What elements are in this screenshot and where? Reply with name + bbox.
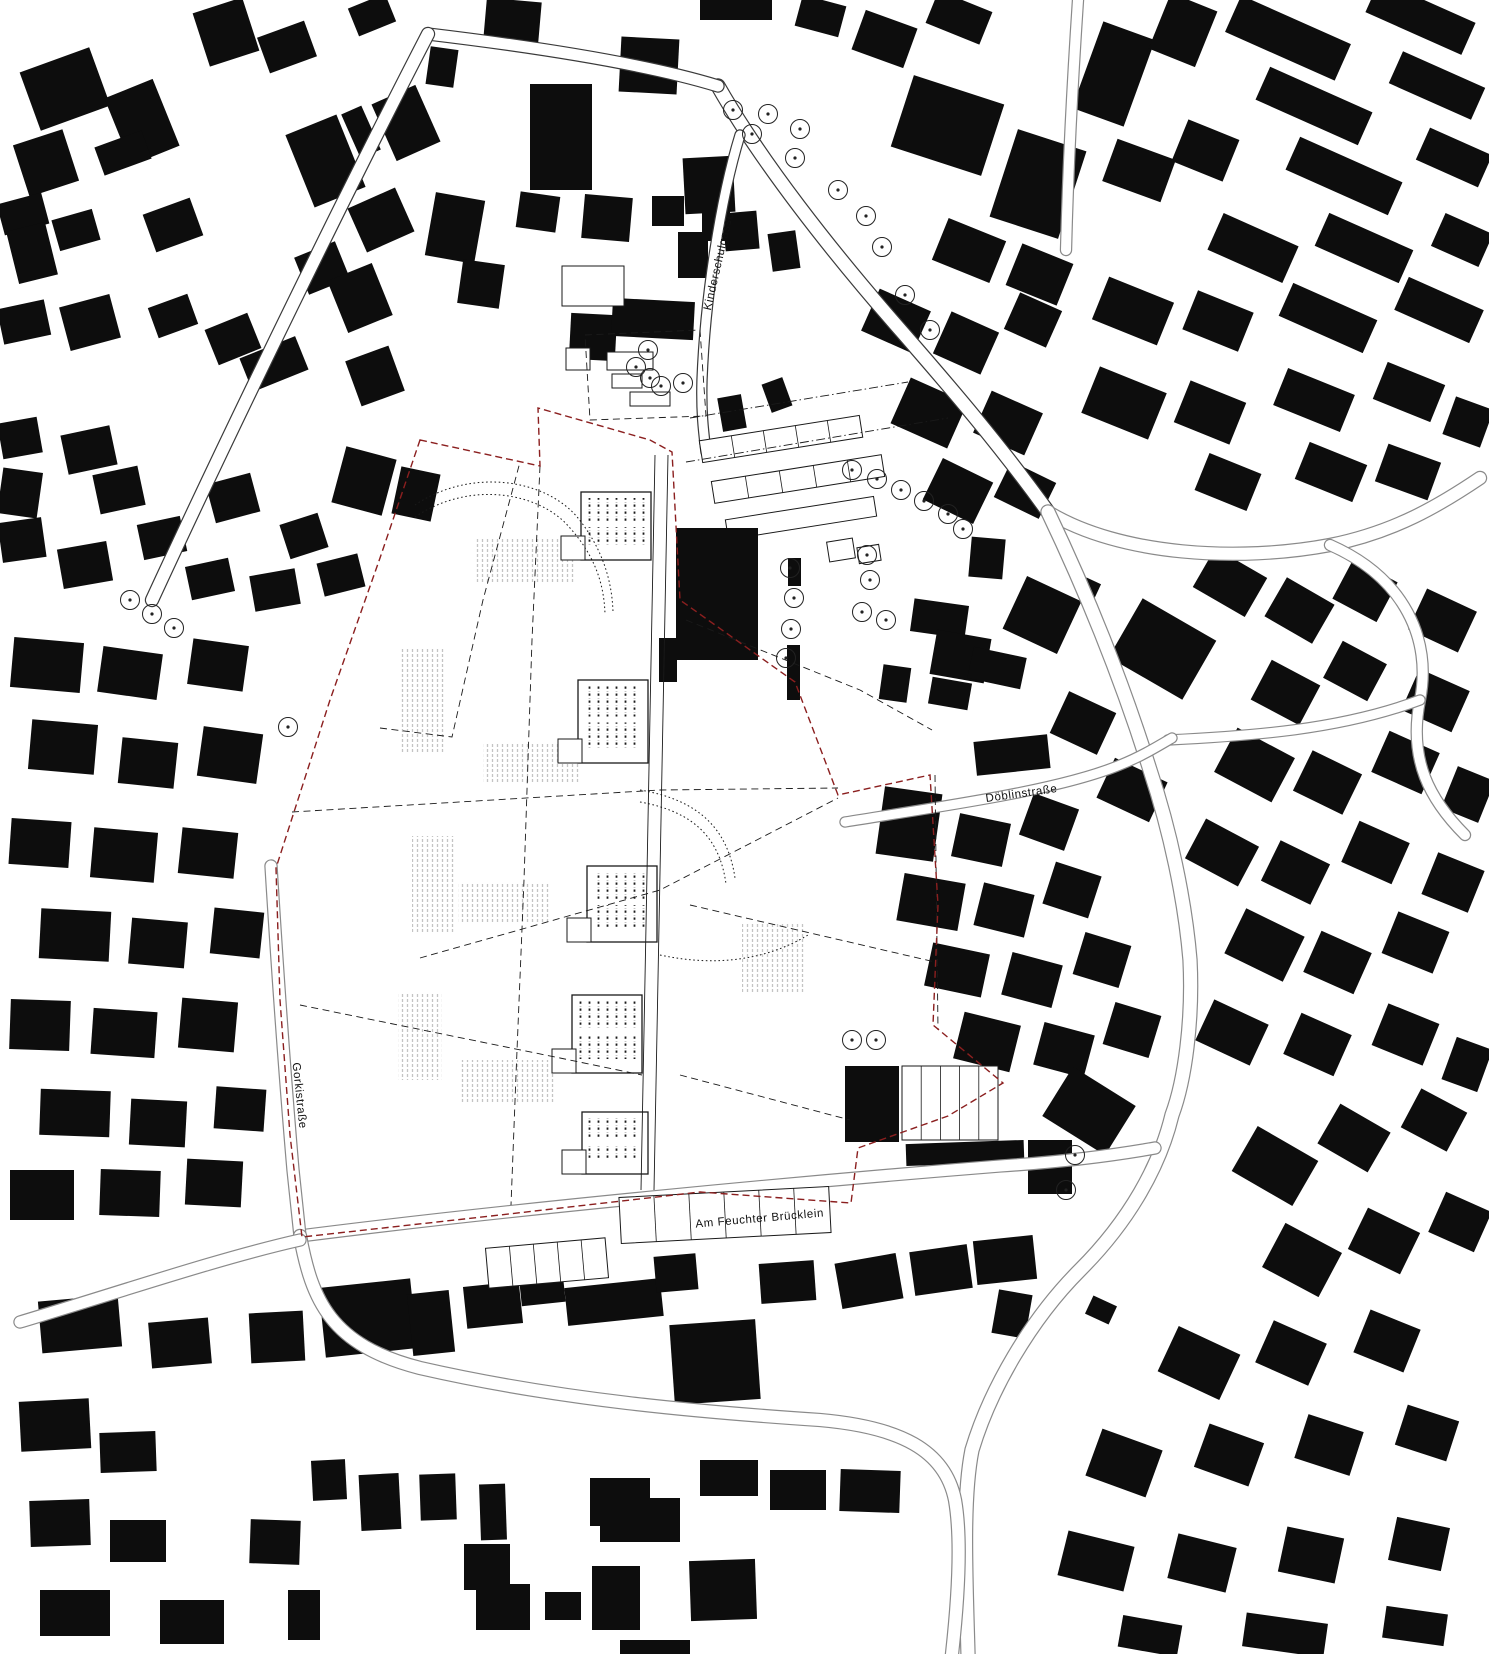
gray-hatch-patch [458, 882, 550, 922]
planned-building-annex [567, 918, 591, 942]
building-footprint [90, 1008, 157, 1058]
building-footprint [581, 194, 633, 242]
gray-hatch-patch [398, 994, 442, 1080]
building-footprint [178, 827, 239, 879]
building-footprint [129, 1099, 187, 1148]
building-footprint [160, 1600, 224, 1644]
building-footprint [185, 1159, 243, 1208]
outlined-building [607, 352, 653, 370]
building-footprint [689, 1559, 757, 1621]
building-footprint [678, 232, 708, 278]
building-footprint [600, 1498, 680, 1542]
building-footprint [97, 646, 163, 700]
building-footprint [0, 417, 43, 459]
building-footprint [669, 1319, 760, 1405]
building-footprint [419, 1473, 457, 1520]
planned-building-annex [561, 536, 585, 560]
building-footprint [8, 818, 71, 868]
building-footprint [99, 1431, 156, 1473]
building-footprint [464, 1544, 510, 1590]
building-footprint [359, 1473, 402, 1531]
building-footprint [770, 1470, 826, 1510]
building-footprint [407, 1290, 455, 1356]
building-footprint [10, 1170, 74, 1220]
building-footprint [759, 1260, 817, 1304]
gray-hatch-patch [412, 836, 456, 934]
building-footprint [40, 1590, 110, 1636]
outlined-building [857, 544, 881, 563]
building-footprint [39, 908, 112, 962]
building-footprint [476, 1584, 530, 1630]
building-footprint [463, 1281, 523, 1329]
building-footprint [0, 517, 47, 563]
building-footprint [210, 908, 265, 959]
building-footprint [592, 1566, 640, 1630]
building-footprint [9, 999, 71, 1051]
building-footprint [973, 1235, 1037, 1285]
building-footprint [654, 1253, 699, 1293]
building-footprint [425, 46, 458, 88]
building-footprint [148, 1317, 212, 1368]
site-plan-map: KinderschulgasseDöblinstraßeGorkistraßeA… [0, 0, 1489, 1654]
building-footprint [10, 637, 84, 693]
building-footprint [249, 1519, 301, 1565]
building-footprint [311, 1459, 347, 1501]
building-footprint [767, 230, 800, 272]
building-footprint [249, 1311, 306, 1364]
outlined-building [562, 266, 624, 306]
building-footprint [0, 467, 43, 518]
building-footprint [90, 827, 158, 882]
building-footprint [457, 259, 505, 308]
building-footprint [968, 537, 1005, 580]
building-footprint [516, 191, 561, 232]
building-footprint [879, 664, 912, 703]
building-footprint [39, 1089, 111, 1137]
building-footprint [620, 1640, 690, 1654]
gray-hatch-patch [400, 648, 446, 752]
outlined-building [902, 1066, 998, 1140]
outlined-building [827, 538, 856, 562]
building-footprint [839, 1469, 900, 1513]
building-footprint [545, 1592, 581, 1620]
building-footprint [187, 638, 249, 691]
building-footprint [28, 719, 98, 775]
building-footprint [178, 998, 238, 1053]
building-footprint [700, 1460, 758, 1496]
existing-building [659, 638, 677, 682]
building-footprint [479, 1484, 507, 1541]
building-footprint [214, 1086, 267, 1131]
outlined-building [630, 392, 670, 406]
building-footprint [118, 737, 179, 789]
building-footprint [652, 196, 684, 226]
building-footprint [909, 1244, 973, 1296]
gray-hatch-patch [460, 1060, 556, 1102]
building-footprint [288, 1590, 320, 1640]
building-footprint [99, 1169, 161, 1217]
planned-building-annex [558, 739, 582, 763]
building-footprint [57, 541, 113, 589]
building-footprint [700, 0, 772, 20]
building-footprint [530, 84, 592, 190]
gray-hatch-patch [742, 922, 806, 992]
site-plan-canvas: KinderschulgasseDöblinstraßeGorkistraßeA… [0, 0, 1489, 1654]
planned-building-annex [562, 1150, 586, 1174]
building-footprint [128, 918, 188, 969]
building-footprint [197, 726, 263, 784]
building-footprint [110, 1520, 166, 1562]
building-footprint [29, 1499, 91, 1547]
building-footprint [19, 1398, 92, 1452]
existing-building [676, 528, 758, 660]
building-footprint [845, 1066, 899, 1142]
